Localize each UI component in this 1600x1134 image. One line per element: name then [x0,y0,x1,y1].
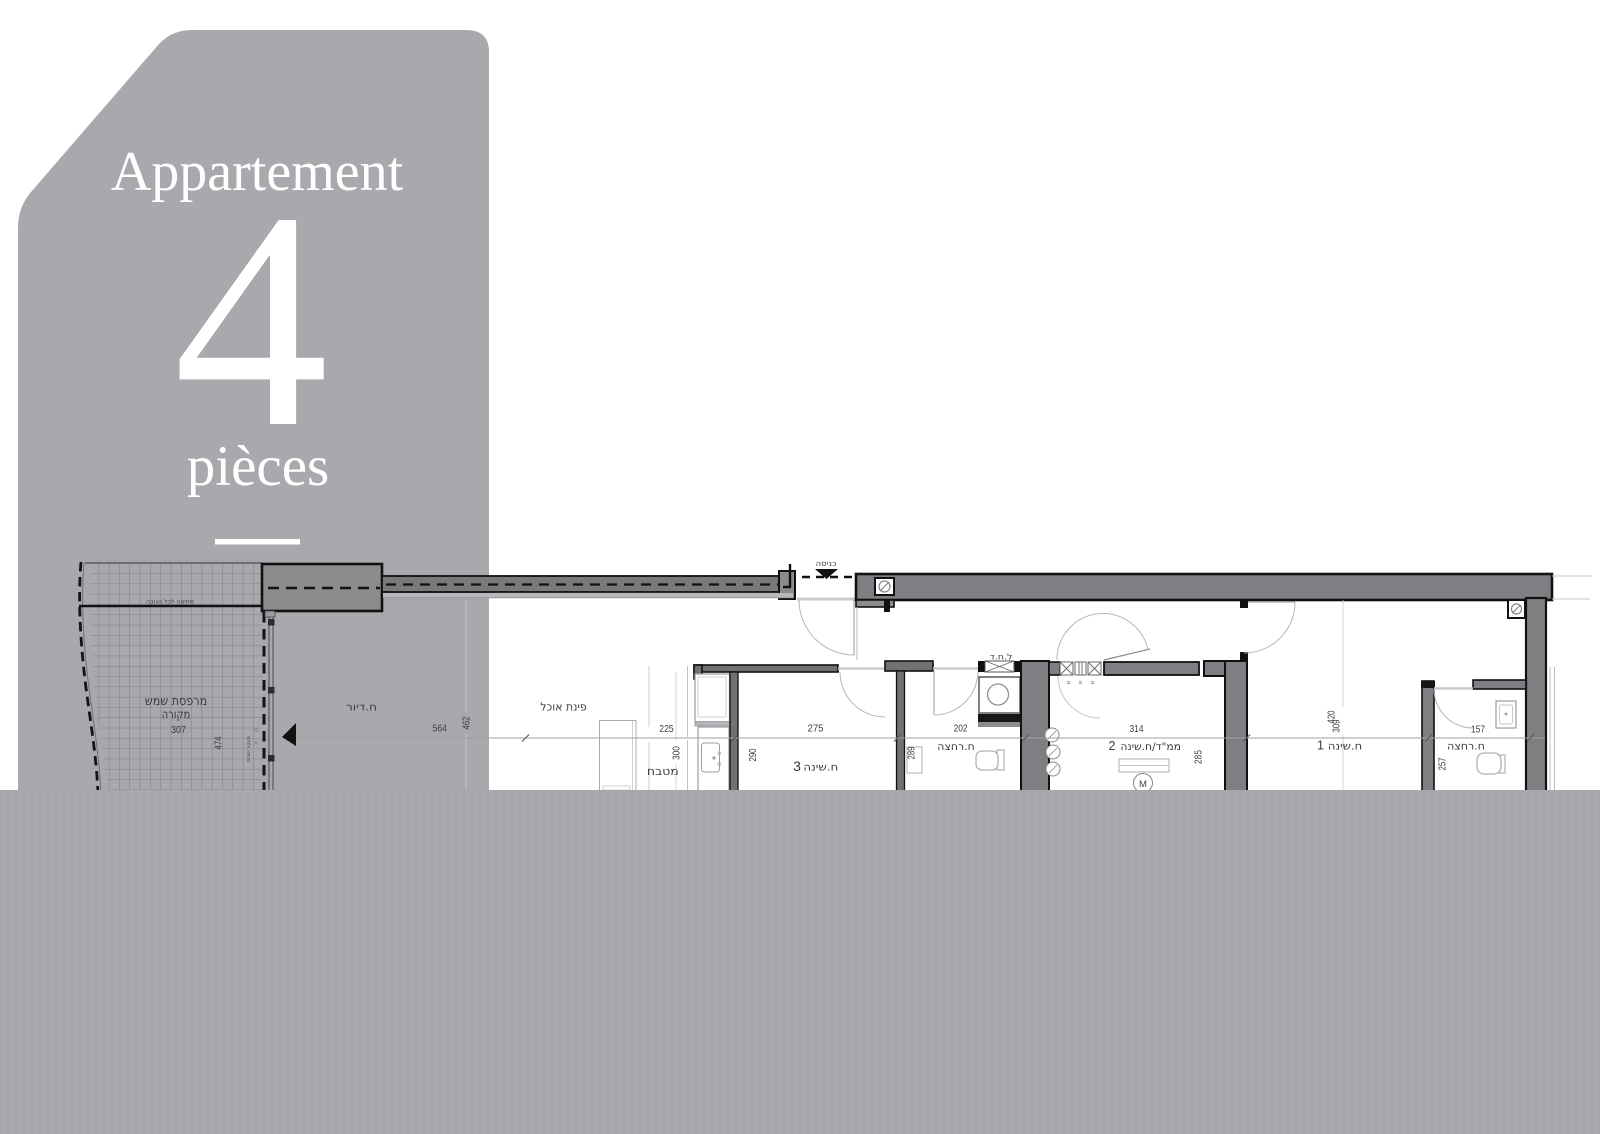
svg-text:462: 462 [462,716,473,729]
svg-text:275: 275 [808,724,824,735]
svg-text:290: 290 [748,748,759,761]
svg-text:257: 257 [1438,757,1449,770]
svg-text:225: 225 [659,724,674,735]
svg-text:300: 300 [672,746,683,760]
svg-text:M: M [1139,779,1147,790]
svg-text:3: 3 [793,758,801,774]
svg-text:285: 285 [1194,750,1205,764]
svg-text:202: 202 [954,724,968,735]
svg-text:307: 307 [171,725,186,736]
svg-text:314: 314 [1130,724,1144,735]
svg-text:2: 2 [1109,739,1116,753]
svg-text:289: 289 [907,746,918,759]
svg-text:1: 1 [1317,739,1324,753]
svg-text:474: 474 [214,736,225,749]
svg-text:pièces: pièces [187,435,329,498]
svg-text:564: 564 [433,724,448,735]
svg-text:157: 157 [1471,725,1485,736]
svg-text:309: 309 [1332,719,1343,732]
